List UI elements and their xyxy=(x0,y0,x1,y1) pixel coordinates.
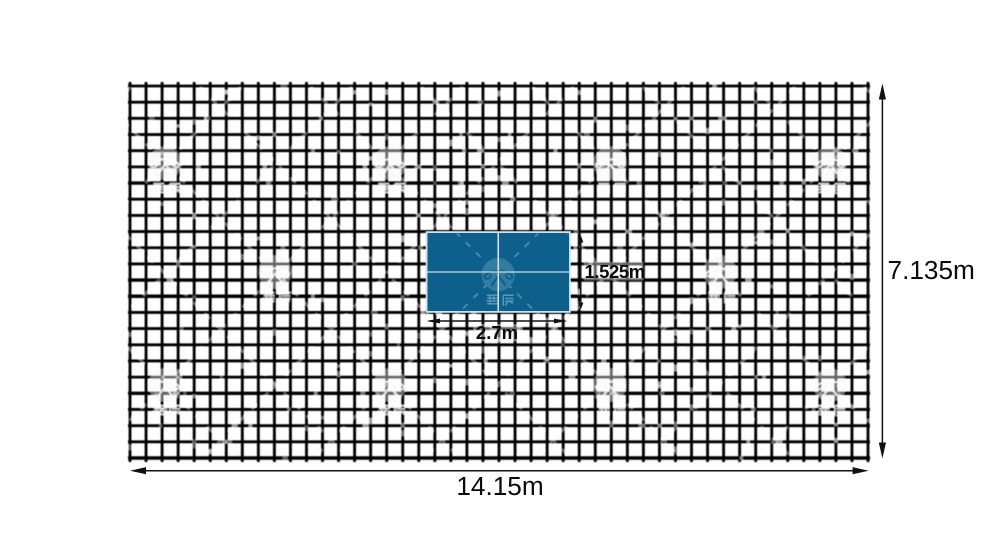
svg-text:7.135m: 7.135m xyxy=(888,255,975,285)
svg-text:1.525m: 1.525m xyxy=(585,261,645,282)
svg-text:14.15m: 14.15m xyxy=(456,471,543,501)
svg-text:2.7m: 2.7m xyxy=(476,322,518,343)
